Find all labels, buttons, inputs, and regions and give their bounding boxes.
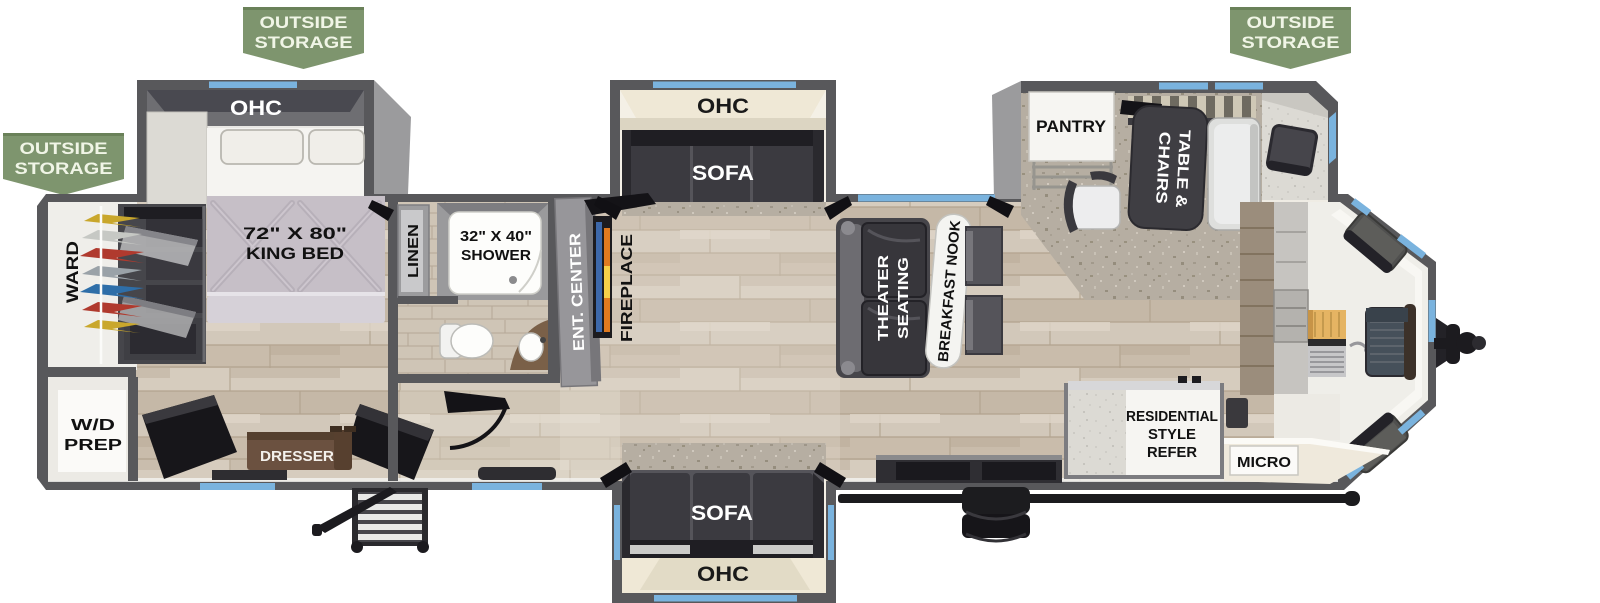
svg-text:THEATER: THEATER bbox=[875, 255, 892, 341]
svg-text:SHOWER: SHOWER bbox=[461, 247, 531, 264]
svg-text:SEATING: SEATING bbox=[895, 257, 912, 339]
svg-text:OHC: OHC bbox=[230, 97, 282, 120]
svg-text:OUTSIDE: OUTSIDE bbox=[1247, 14, 1335, 32]
svg-text:STORAGE: STORAGE bbox=[1242, 34, 1340, 52]
svg-text:LINEN: LINEN bbox=[405, 224, 422, 278]
svg-text:WARD: WARD bbox=[63, 241, 82, 303]
svg-text:MICRO: MICRO bbox=[1237, 454, 1291, 471]
svg-text:FIREPLACE: FIREPLACE bbox=[619, 234, 636, 342]
svg-text:REFER: REFER bbox=[1147, 444, 1197, 461]
svg-text:SOFA: SOFA bbox=[692, 162, 754, 185]
svg-text:DRESSER: DRESSER bbox=[260, 448, 334, 465]
svg-text:PREP: PREP bbox=[64, 437, 122, 454]
svg-text:W/D: W/D bbox=[71, 417, 115, 434]
svg-text:OUTSIDE: OUTSIDE bbox=[20, 140, 108, 158]
svg-text:PANTRY: PANTRY bbox=[1036, 117, 1107, 136]
svg-text:OHC: OHC bbox=[697, 563, 749, 586]
svg-text:OHC: OHC bbox=[697, 95, 749, 118]
svg-text:STORAGE: STORAGE bbox=[255, 34, 353, 52]
svg-text:SOFA: SOFA bbox=[691, 502, 753, 525]
svg-text:STORAGE: STORAGE bbox=[15, 160, 113, 178]
svg-text:STYLE: STYLE bbox=[1148, 426, 1196, 443]
svg-text:OUTSIDE: OUTSIDE bbox=[260, 14, 348, 32]
svg-text:KING BED: KING BED bbox=[246, 244, 344, 263]
svg-text:72" X 80": 72" X 80" bbox=[243, 224, 347, 243]
svg-text:32" X 40": 32" X 40" bbox=[460, 228, 532, 245]
svg-text:RESIDENTIAL: RESIDENTIAL bbox=[1126, 408, 1218, 425]
